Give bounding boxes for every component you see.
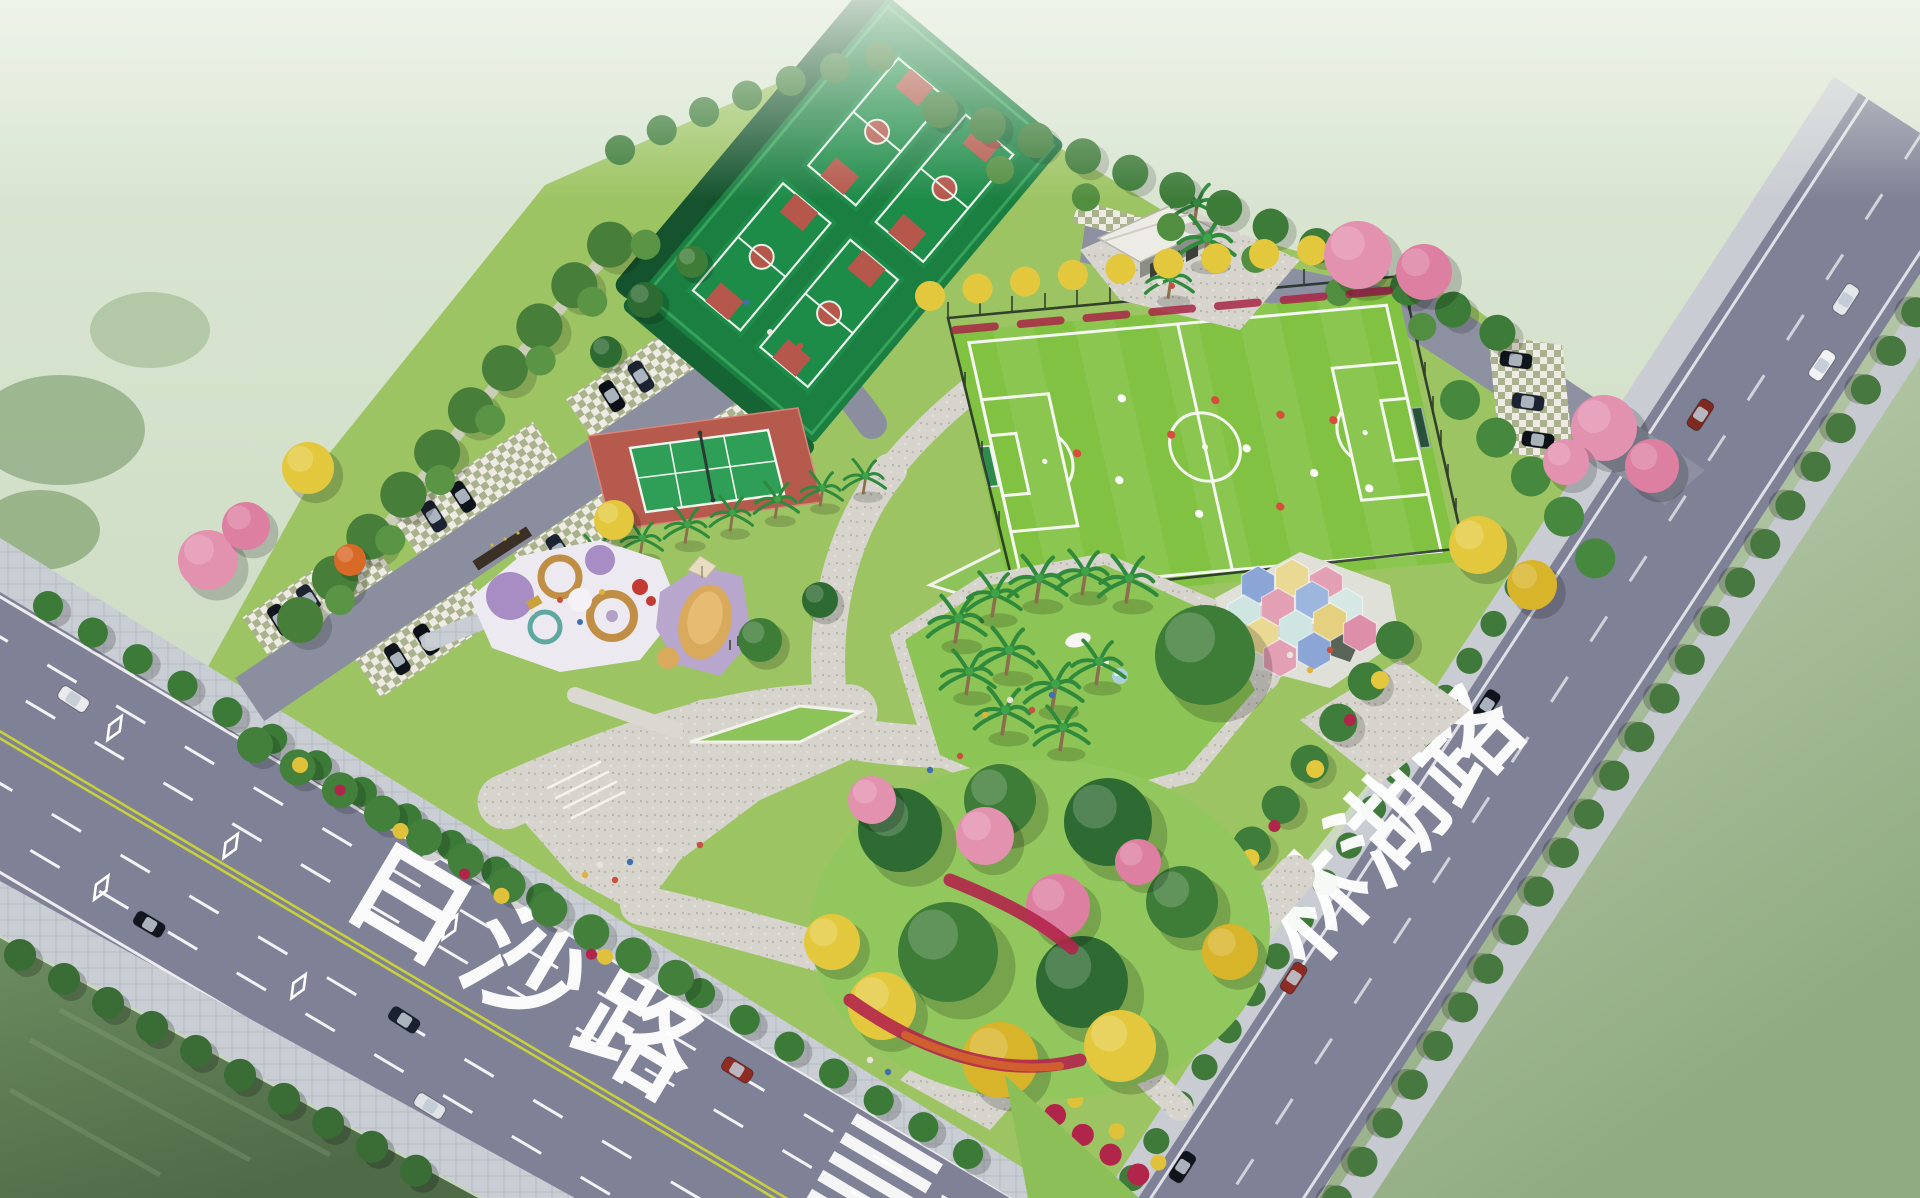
park-masterplan-rendering: 白沙路 — [0, 0, 1920, 1198]
mist-overlay — [0, 0, 1920, 200]
